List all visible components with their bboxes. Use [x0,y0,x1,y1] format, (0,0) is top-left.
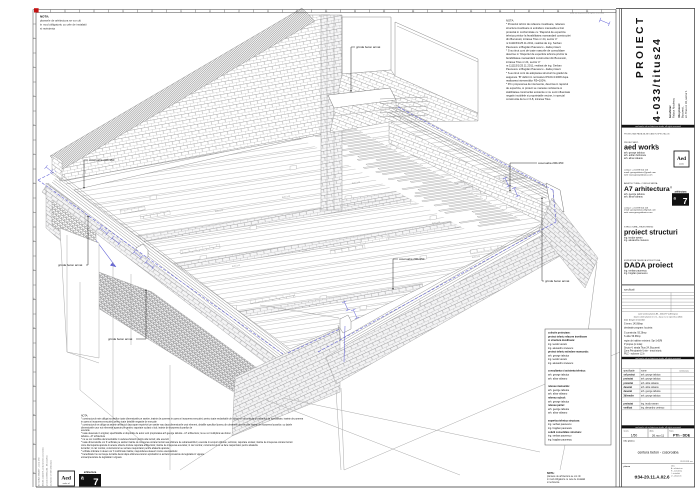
svg-text:works: works [679,163,684,166]
svg-text:specificatie: specificatie [624,369,636,372]
svg-text:cosoroaba 200x150: cosoroaba 200x150 [399,257,425,261]
svg-text:tehnica privitor la fezabilita: tehnica privitor la fezabilitatea mansar… [506,34,571,38]
svg-text:STRUCTURA - REZISTENTA:: STRUCTURA - REZISTENTA: [624,226,654,229]
svg-text:arh. george tabuica: arh. george tabuica [548,408,570,411]
svg-text:aed works srl architecture stu: aed works srl architecture studio, all r… [635,125,681,128]
svg-text:Sector 4, strada Titus 24, Buc: Sector 4, strada Titus 24, Bucuresti [624,347,660,350]
svg-text:* constructorul este obligat s: * constructorul este obligat sa verifice… [81,417,304,420]
svg-text:ing. alexandru cretescu: ing. alexandru cretescu [624,239,649,242]
svg-text:plansa: plansa [624,466,631,468]
svg-text:* toate desenele in original,: * toate desenele in original, specificat… [81,432,231,435]
svg-text:P propus (si nota):: P propus (si nota): [624,343,643,346]
svg-text:desenat: desenat [624,386,633,389]
svg-text:verificat: verificat [624,407,633,410]
svg-text:colectiv proiectare:: colectiv proiectare: [548,332,571,335]
svg-text:nr.111115/1/25.11.2011, realiz: nr.111115/1/25.11.2011, realizat de ing.… [506,41,562,45]
svg-text:centura beton - cosoroaba: centura beton - cosoroaba [638,451,679,455]
svg-text:releveu parter:: releveu parter: [548,404,565,407]
svg-text:arh. george tabuica: arh. george tabuica [548,400,570,403]
svg-text:S construita: 93.26mp: S construita: 93.26mp [624,332,647,335]
svg-text:format A3: 420x297 - scara 1/5: format A3: 420x297 - scara 1/50 [38,457,41,486]
svg-text:NOTA:: NOTA: [81,415,88,418]
svg-text:regim de inaltime existent: Sp: regim de inaltime existent: Sp+1+E/M [624,339,662,342]
svg-text:arh. alina videanu: arh. alina videanu [548,412,568,415]
svg-text:works srl: works srl [63,483,71,485]
svg-text:releveu mansarda:: releveu mansarda: [548,385,570,388]
svg-text:orice discrepanta aparuta in a: orice discrepanta aparuta in aceste obie… [81,444,259,447]
svg-text:tt34-20.11.A.02.6: tt34-20.11.A.02.6 [634,474,670,479]
svg-text:plansele de arhitectura se vor: plansele de arhitectura se vor citi [547,475,581,478]
svg-text:* Prin propunerea de intervent: * Prin propunerea de interventie, descri… [506,82,569,86]
svg-text:nume: nume [641,370,647,372]
svg-text:3d/render: 3d/render [624,394,634,397]
svg-text:PROIECT: PROIECT [635,15,646,78]
svg-text:titlu plansa: titlu plansa [624,440,636,443]
svg-text:din Bucuresti, intrarea Titus: din Bucuresti, intrarea Titus nr 24, sec… [506,37,557,41]
svg-text:* toate dimensiunile vor fi ve: * toate dimensiunile vor fi verificate p… [81,441,293,444]
svg-text:ing. bogdan paunescu: ing. bogdan paunescu [548,439,573,442]
svg-text:ing. teodor avram: ing. teodor avram [548,343,567,346]
svg-text:S utila: 59.68mp: S utila: 59.68mp [624,335,641,338]
svg-text:arh. george tabuica: arh. george tabuica [548,389,570,392]
svg-text:cosoroaba 200x150: cosoroaba 200x150 [538,161,564,165]
svg-text:in mod obligatoriu cu cele de: in mod obligatoriu cu cele de instalatii [547,478,586,481]
svg-text:Paunescu si Bogdan Paunescu -: Paunescu si Bogdan Paunescu - dada proie… [506,45,562,49]
svg-text:tabuica - A7 arhitectura: tabuica - A7 arhitectura [81,435,106,438]
svg-text:S teren: 143.68mp: S teren: 143.68mp [624,323,644,326]
svg-text:proiectat: proiectat [624,378,634,381]
svg-text:si rezistenta: si rezistenta [547,481,560,484]
svg-text:semnatura: semnatura [679,370,689,373]
svg-text:arhitectura: arhitectura [675,191,688,194]
svg-text:str. Titus nr. 34, sector 1: str. Titus nr. 34, sector 1 [684,90,688,118]
svg-text:tt34-20.11.A.02.6_centura beto: tt34-20.11.A.02.6_centura beton cosoroab… [42,447,45,486]
svg-text:* S-au tinut cont de adoptarea: * S-au tinut cont de adoptarea structuri… [506,71,568,75]
svg-text:* nu se vor modifica documenta: * nu se vor modifica documentatiile in v… [81,438,169,441]
svg-text:grinda beton armat: grinda beton armat [58,263,82,267]
svg-text:U - urbanism: U - urbanism [671,475,682,478]
svg-text:arh. george tabuica: arh. george tabuica [641,394,661,397]
svg-text:PROIECTAM FARA SA NE DAM IN SP: PROIECTAM FARA SA NE DAM IN SPECTACOL! [624,133,671,136]
svg-text:beneficiar:: beneficiar: [668,105,672,118]
svg-text:Aed: Aed [61,476,72,482]
svg-text:aed works srl architecture stu: aed works srl architecture studio, all r… [635,357,681,360]
svg-text:Raluca Niculescu: Raluca Niculescu [672,97,676,118]
svg-text:de expertiza, si proiect se ma: de expertiza, si proiect se mareste rezi… [506,86,562,90]
svg-text:structura invelitoare si extin: structura invelitoare si extindere mansa… [506,26,564,30]
svg-text:arh. george tabuica: arh. george tabuica [548,354,570,357]
svg-text:NOTA:: NOTA: [547,472,555,475]
svg-text:releveu subsol:: releveu subsol: [548,396,566,399]
svg-text:arh. george tabuica: arh. george tabuica [641,390,661,393]
svg-text:DADA proiect: DADA proiect [624,261,674,270]
svg-text:Aed: Aed [677,156,686,162]
svg-text:PUZ - subzone L2.b: PUZ - subzone L2.b [624,354,645,356]
svg-text:arhitectura: arhitectura [84,471,97,474]
svg-text:web: www.georgetabuica.com: web: www.georgetabuica.com [624,211,653,214]
svg-text:arh. george tabuica: arh. george tabuica [548,374,570,377]
svg-text:proiectat: proiectat [624,382,634,385]
svg-text:sef proiect: sef proiect [624,374,636,377]
svg-text:lucrarilor; in caz contrar, co: lucrarilor; in caz contrar, constructoru… [81,447,170,450]
svg-text:proiectat in conformitate cu “: proiectat in conformitate cu “Raportul d… [506,30,566,34]
svg-text:emise/prevazute de legislatia: emise/prevazute de legislatia in vigoare [81,456,122,459]
svg-text:ing. alexandru cretescu: ing. alexandru cretescu [548,362,574,365]
svg-text:realizarea interventiilor R3=1: realizarea interventiilor R3=100%. [506,79,547,83]
svg-text:executie: executie [81,429,90,432]
svg-text:(aed works proiect, all rights: (aed works proiect, all rights reserved) [570,12,604,15]
svg-text:ing. alexandru cretescu: ing. alexandru cretescu [641,407,665,410]
svg-text:arh. george tabuica: arh. george tabuica [641,378,661,381]
svg-text:ing. teodor avram: ing. teodor avram [548,358,567,361]
svg-text:intrarea Titus nr 24, sector 4: intrarea Titus nr 24, sector 4” [506,60,540,64]
svg-text:(aed works) planse A3 - 420x29: (aed works) planse A3 - 420x297 (alb/neg… [638,313,678,316]
svg-text:consultanta si asistenta tehni: consultanta si asistenta tehnica: [548,370,586,373]
svg-text:NOTA:: NOTA: [506,19,514,23]
svg-text:* constructorul se obliga sa a: * constructorul se obliga sa anunte arhi… [81,423,293,426]
svg-text:grinda beton armat: grinda beton armat [356,45,380,49]
svg-text:desenat: desenat [624,390,633,393]
svg-text:date despre investitie:: date despre investitie: [624,319,646,322]
svg-text:28.11.2011 rev.: 28.11.2011 rev. [680,460,693,463]
svg-text:descrise in “Raportul de exper: descrise in “Raportul de expertiza tehni… [506,52,568,56]
svg-text:dimensiunile unor noi elemente: dimensiunile unor noi elemente aparute p… [81,426,193,429]
svg-text:grinda beton armat: grinda beton armat [108,337,132,341]
svg-text:Paunescu si Bogdan Paunescu -: Paunescu si Bogdan Paunescu - dada proie… [506,67,562,71]
svg-text:proiect tehnic refacere inveli: proiect tehnic refacere invelitoare [548,335,588,338]
svg-text:proiect tehnic extindere mansa: proiect tehnic extindere mansarda: [548,351,589,354]
svg-text:web: www.georgetabuica.com: web: www.georgetabuica.com [624,173,653,176]
svg-text:26.nov.11: 26.nov.11 [652,433,665,437]
svg-text:arh. alina videanu: arh. alina videanu [548,377,568,380]
svg-text:ing. bogdan paunescu: ing. bogdan paunescu [624,272,648,275]
svg-text:* Proiectul tehnic de refacere: * Proiectul tehnic de refacere invelitoa… [506,22,565,26]
svg-text:* schitele indicate in desen v: * schitele indicate in desen vor fi conf… [81,450,178,453]
svg-text:grinda beton armat: grinda beton armat [545,279,569,283]
svg-text:arh. alina videanu: arh. alina videanu [641,382,660,385]
svg-text:si structura invelitoare:: si structura invelitoare: [548,339,575,342]
svg-text:aed works: aed works [624,143,659,152]
svg-text:arh. alina videanu: arh. alina videanu [624,157,644,160]
svg-text:* S-au tinut cont de toate mas: * S-au tinut cont de toate masurile de c… [506,49,565,53]
svg-text:ing. bogdan paunescu: ing. bogdan paunescu [548,427,573,430]
svg-text:stabilitatea constructiei exis: stabilitatea constructiei existente si n… [506,90,571,94]
svg-text:ing. serban paunescu: ing. serban paunescu [548,423,572,426]
svg-text:Zona Principatele Unite - tesu: Zona Principatele Unite - tesut istoric [624,350,662,353]
svg-text:expertiza tehnica structura:: expertiza tehnica structura: [548,419,580,422]
svg-text:7: 7 [683,196,688,206]
svg-text:PTh - DDE: PTh - DDE [673,434,691,438]
svg-text:Bucuresti,: Bucuresti, [681,106,685,118]
svg-text:aed works srl architecture stu: aed works srl architecture studio, all r… [635,426,681,429]
svg-text:titlu proiect:: titlu proiect: [677,103,681,118]
svg-text:arh. george tabuica: arh. george tabuica [641,374,661,377]
svg-text:si rezistenta: si rezistenta [40,27,55,31]
svg-text:ing. alexandru cretescu: ing. alexandru cretescu [548,347,574,350]
svg-text:fezabilitatea mansardarii cons: fezabilitatea mansardarii constructiei d… [506,56,567,60]
svg-text:specificatii: specificatii [624,289,635,292]
svg-text:in opera si inceperea executie: in opera si inceperea executiei; pentru … [81,420,157,423]
svg-text:proiectat: proiectat [624,403,634,406]
svg-text:constructia de la nr 6-8, intr: constructia de la nr 6-8, intrarea Titus… [506,97,551,101]
svg-text:a: a [81,476,84,482]
svg-text:aed works srl / A7 arhitectura: aed works srl / A7 arhitectura [50,459,53,486]
svg-text:asigurare “B” definit in norma: asigurare “B” definit in normativul P100… [506,75,569,79]
svg-text:destinatie program: locuinta: destinatie program: locuinta [624,327,653,330]
svg-text:arh. alina videanu: arh. alina videanu [624,196,644,199]
svg-text:nr.111115/1/25.11.2011, realiz: nr.111115/1/25.11.2011, realizat de ing.… [506,64,562,68]
svg-text:(toate cotele plansei in cm -: (toate cotele plansei in cm - daca nu se… [634,315,683,318]
svg-text:solutii consolidare structura:: solutii consolidare structura: [548,431,582,434]
svg-text:4-033/titus24: 4-033/titus24 [651,38,663,122]
svg-text:scara: scara [624,429,630,432]
svg-text:ing. serban paunescu: ing. serban paunescu [548,435,572,438]
svg-text:ARHITECTURA - CONSULTANTA:: ARHITECTURA - CONSULTANTA: [624,182,658,185]
svg-text:proiect 4-033/titus24 - 26.nov: proiect 4-033/titus24 - 26.nov.2011 [46,455,49,487]
svg-text:* beneficiarul nu va incepe lu: * beneficiarul nu va incepe lucrarile de… [81,453,205,456]
svg-text:ing. teodor avram: ing. teodor avram [641,403,659,406]
svg-text:1/50: 1/50 [631,433,638,437]
svg-text:7: 7 [93,477,98,488]
svg-text:arh. alina videanu: arh. alina videanu [641,386,660,389]
svg-text:cosoroaba 200x150: cosoroaba 200x150 [89,158,115,162]
svg-text:negativ imobilele si proprieta: negativ imobilele si proprietatile vecin… [506,94,565,98]
svg-text:arh. alina videanu: arh. alina videanu [548,393,568,396]
